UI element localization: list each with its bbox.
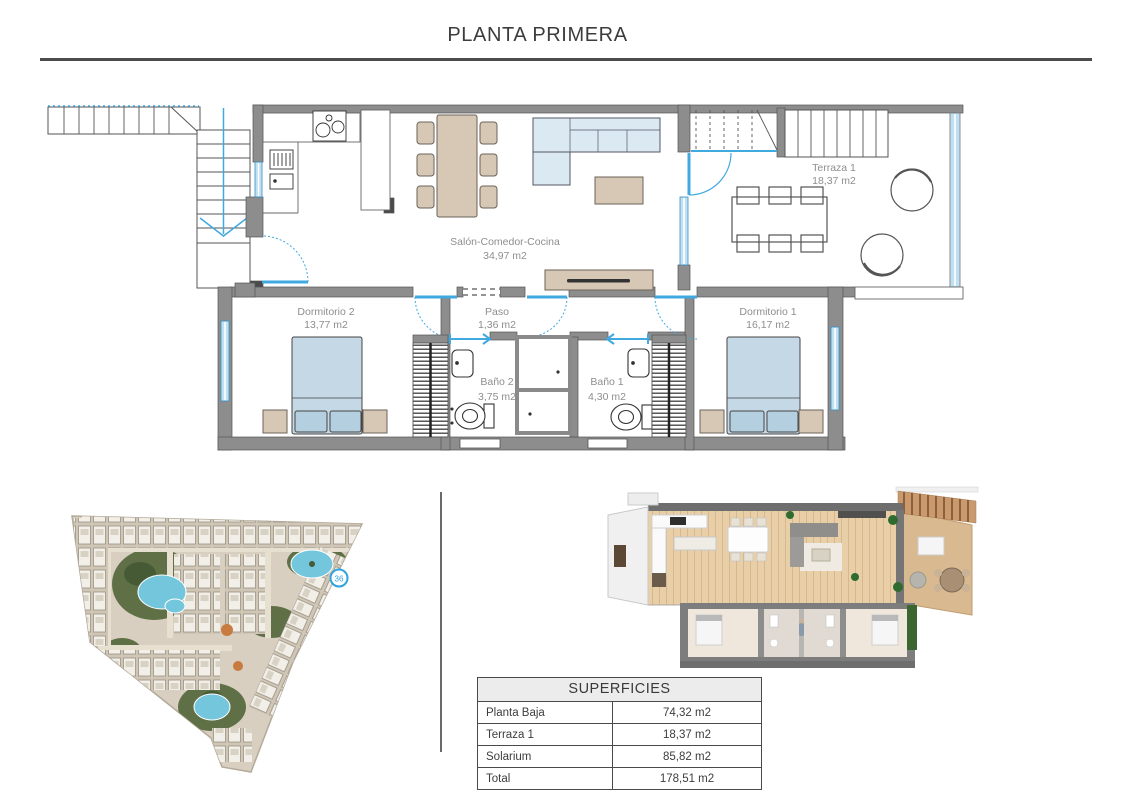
render-dining [728,518,768,561]
row-label: Planta Baja [478,702,613,723]
svg-text:Baño 1: Baño 1 [590,376,623,388]
table-row-terraza: Terraza 1 18,37 m2 [478,724,761,746]
outdoor-dining [732,187,827,252]
table-row-solarium: Solarium 85,82 m2 [478,746,761,768]
site-plan-map: 36 [62,502,392,780]
sofa [533,118,660,185]
room-label-bano1: Baño 1 4,30 m2 [588,376,626,403]
table-row-planta-baja: Planta Baja 74,32 m2 [478,702,761,724]
unit-marker: 36 [331,570,348,587]
round-chairs [861,169,933,276]
room-label-bano2: Baño 2 3,75 m2 [478,376,516,403]
row-label: Terraza 1 [478,724,613,745]
terraza [691,110,933,276]
room-label-dormitorio1: Dormitorio 1 16,17 m2 [739,306,796,331]
table-row-total: Total 178,51 m2 [478,768,761,789]
room-label-dormitorio2: Dormitorio 2 13,77 m2 [297,306,354,331]
svg-text:16,17 m2: 16,17 m2 [746,319,790,331]
room-label-paso: Paso 1,36 m2 [478,306,516,331]
svg-text:Baño 2: Baño 2 [480,376,513,388]
render-person [799,619,804,637]
dashed-opening [463,288,500,296]
bano2-fixtures [451,350,494,429]
showers [517,337,570,433]
svg-text:13,77 m2: 13,77 m2 [304,319,348,331]
floor-plan: Salón-Comedor-Cocina 34,97 m2 Terraza 1 … [0,0,1133,470]
stove [313,111,346,141]
vent-appliance [270,150,293,169]
svg-text:Salón-Comedor-Cocina: Salón-Comedor-Cocina [450,236,560,248]
wardrobe [413,335,448,437]
svg-text:1,36 m2: 1,36 m2 [478,319,516,331]
dining-set [417,115,497,217]
kitchen [263,110,390,213]
dormitorio1-furniture [652,335,823,437]
row-value: 178,51 m2 [613,768,761,789]
render-upper-floor [608,487,978,615]
brochure-page: PLANTA PRIMERA [0,0,1133,800]
svg-text:Paso: Paso [485,306,509,318]
row-label: Total [478,768,613,789]
sliding-door-bano1 [607,334,648,344]
svg-text:Dormitorio 1: Dormitorio 1 [739,306,796,318]
svg-text:3,75 m2: 3,75 m2 [478,391,516,403]
surfaces-table-title: SUPERFICIES [478,678,761,702]
svg-text:Terraza 1: Terraza 1 [812,162,856,174]
wardrobe [652,335,686,437]
dormitorio2-furniture [263,335,448,437]
row-value: 85,82 m2 [613,746,761,767]
svg-text:Dormitorio 2: Dormitorio 2 [297,306,354,318]
sliding-door-bano2 [450,334,490,344]
bano1-fixtures [611,349,652,430]
svg-text:36: 36 [335,575,344,584]
unit-3d-render [600,485,980,680]
svg-text:18,37 m2: 18,37 m2 [812,175,856,187]
svg-text:34,97 m2: 34,97 m2 [483,250,527,262]
kitchen-sink [270,174,293,189]
svg-text:4,30 m2: 4,30 m2 [588,391,626,403]
terraza-stairs [785,110,888,157]
room-label-terraza: Terraza 1 18,37 m2 [812,162,856,187]
render-bedroom-strip [680,603,917,668]
row-value: 18,37 m2 [613,724,761,745]
row-label: Solarium [478,746,613,767]
room-label-salon: Salón-Comedor-Cocina 34,97 m2 [450,236,560,262]
exterior-stairs [48,106,250,288]
surfaces-table: SUPERFICIES Planta Baja 74,32 m2 Terraza… [477,677,762,790]
coffee-table [595,177,643,204]
row-value: 74,32 m2 [613,702,761,723]
tv-console [545,270,653,290]
section-divider [440,492,442,752]
